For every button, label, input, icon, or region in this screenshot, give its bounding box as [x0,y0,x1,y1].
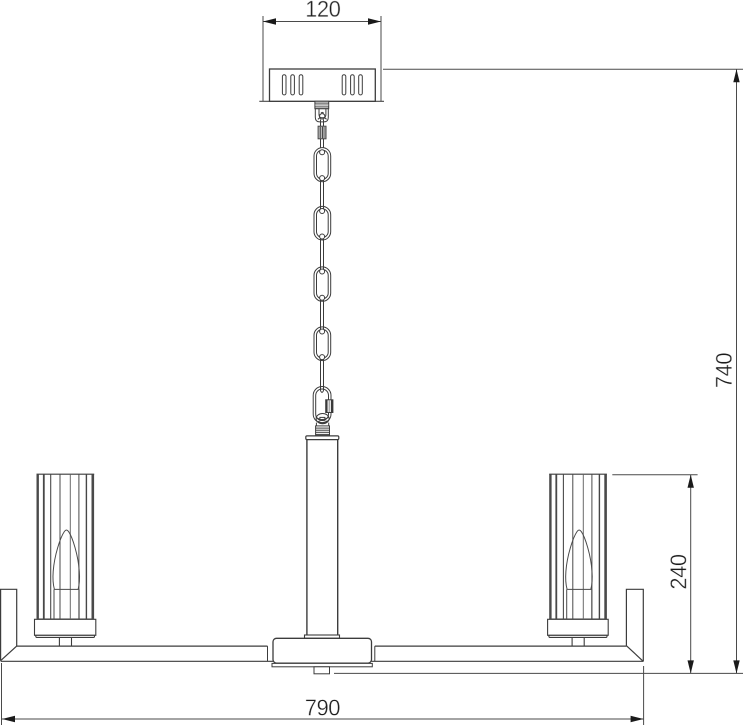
svg-text:120: 120 [305,0,340,22]
svg-text:790: 790 [305,694,340,721]
svg-text:240: 240 [665,554,692,589]
svg-text:740: 740 [710,353,737,388]
